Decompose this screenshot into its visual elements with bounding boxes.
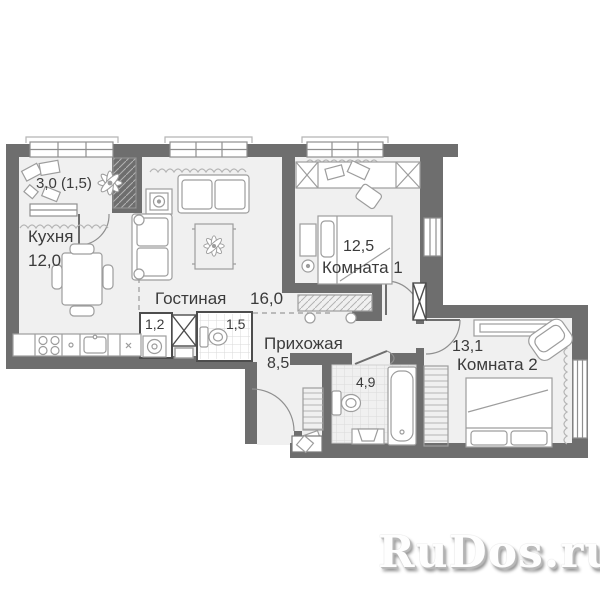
- chair: [70, 244, 94, 254]
- balcony-door-window: [30, 204, 77, 216]
- living-window: [165, 137, 252, 157]
- room2-name: Комната 2: [457, 356, 538, 373]
- washing-machine-icon: [143, 336, 166, 357]
- room1-window: [302, 137, 388, 157]
- hallway-name: Прихожая: [264, 335, 343, 352]
- room1-area: 12,5: [343, 239, 374, 255]
- wall-room2-top: [423, 305, 588, 318]
- kitchen-name: Кухня: [28, 228, 74, 245]
- balcony-label: 3,0 (1,5): [36, 176, 92, 191]
- wall-living-room1: [282, 157, 295, 293]
- balcony-window: [26, 137, 118, 157]
- living-plant-icon: [204, 236, 224, 256]
- wall-bath-top-a: [290, 353, 352, 365]
- kitchen-area: 12,0: [28, 252, 61, 269]
- balcony-plant-icon: [98, 171, 122, 195]
- bathroom-area: 4,9: [356, 375, 375, 389]
- room1-wardrobe-desk: [296, 161, 420, 188]
- room2-window: [573, 360, 587, 438]
- tv-unit: [146, 189, 172, 214]
- wall-room2-left-b: [416, 348, 424, 444]
- chair: [103, 265, 113, 289]
- rudos-watermark: RuDos.ru: [378, 527, 593, 578]
- chair: [70, 306, 94, 316]
- room1-nightstand: [300, 224, 316, 272]
- hall-cabinet: [172, 315, 196, 358]
- room2-bed: [466, 378, 552, 447]
- wc-area: 1,5: [226, 317, 245, 331]
- floor-plan: 3,0 (1,5) Кухня 12,0 Гостиная 16,0 12,5 …: [0, 0, 600, 600]
- hallway-area: 8,5: [267, 356, 289, 372]
- room2-wardrobe: [424, 366, 448, 446]
- floor-plan-drawing: [0, 0, 600, 600]
- bathroom-sink-icon: [352, 429, 384, 444]
- wall-hall-bottom-a: [245, 431, 252, 444]
- room1-radiator-niche: [424, 218, 441, 256]
- vent-shaft: [413, 283, 426, 320]
- room2-area: 13,1: [452, 339, 483, 355]
- room1-name: Комната 1: [322, 259, 403, 276]
- wall-corridor-stub: [352, 311, 382, 321]
- kitchen-counter: [13, 334, 141, 356]
- living-name: Гостиная: [155, 290, 226, 307]
- bathtub-icon: [388, 367, 416, 445]
- laundry-area: 1,2: [145, 317, 164, 331]
- living-area: 16,0: [250, 290, 283, 307]
- entry-step: [292, 436, 322, 453]
- wc-toilet-icon: [200, 327, 227, 347]
- faucet-icon: [69, 343, 73, 347]
- sink-icon: [84, 335, 106, 353]
